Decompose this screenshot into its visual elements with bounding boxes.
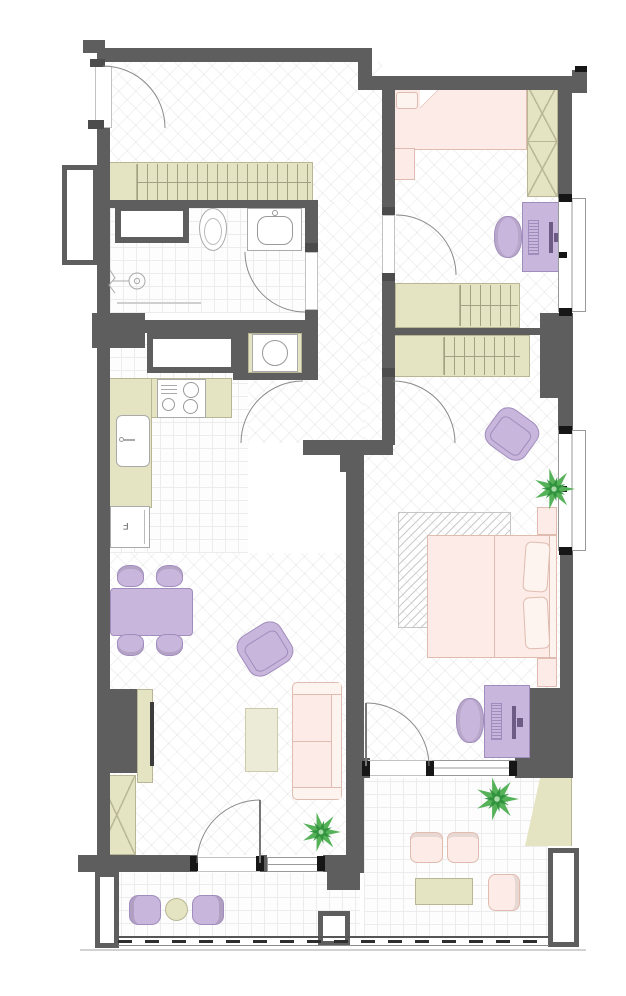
balcony-column-left — [95, 872, 119, 948]
wall-top-right — [358, 76, 572, 90]
toilet-bowl — [204, 218, 222, 245]
kitchen-faucet-bar — [124, 439, 135, 441]
dining-chair-1 — [117, 565, 144, 587]
dining-chair-4 — [156, 634, 183, 656]
wall-ledge-bottom-left — [78, 855, 197, 872]
sofa-cushion-line — [293, 741, 332, 742]
wall-living-bottom-east — [323, 855, 360, 872]
master-pillow-1 — [522, 541, 550, 593]
shower-screen — [117, 302, 201, 304]
master-door-tick — [382, 368, 395, 377]
master-monitor-stand — [517, 718, 523, 727]
balcony-column-right — [548, 848, 579, 947]
wall-right-2 — [560, 551, 573, 688]
wall-kids-master-divider — [393, 328, 573, 335]
entry-hinge-bottom — [88, 120, 104, 129]
wall-pillar-a — [540, 313, 573, 398]
kids-bed-pillow — [396, 92, 418, 109]
headboard — [549, 536, 556, 657]
kids-tall-wardrobe-upper — [527, 85, 558, 142]
hall-wardrobe-hangers — [136, 164, 311, 200]
washer-drum — [262, 340, 288, 366]
kids-door-opening — [382, 215, 395, 275]
kids-desk-chair — [494, 216, 522, 258]
master-window-tick-top — [559, 426, 572, 434]
sofa-back — [331, 683, 341, 799]
bath-door-opening — [305, 252, 318, 310]
living-window-south — [267, 857, 323, 872]
kids-keyboard — [528, 220, 539, 255]
master-pillow-2 — [523, 596, 551, 649]
kids-door-tick-a — [382, 207, 395, 215]
burner-grate — [161, 384, 177, 394]
kids-bed-foot — [392, 148, 415, 180]
nightstand-north — [537, 507, 557, 535]
master-keyboard — [491, 703, 502, 740]
master-wardrobe-hangers — [443, 337, 520, 375]
wall-living-master-divider — [346, 455, 364, 873]
tv — [150, 702, 154, 766]
kids-window-tick-bottom — [559, 308, 572, 316]
kids-window-tick-top — [559, 194, 572, 202]
balcony-chair-purple-1 — [129, 895, 161, 925]
floor-plan: F — [0, 0, 626, 996]
master-south-tick-c — [509, 761, 517, 776]
sofa-arm-top — [293, 683, 341, 695]
wall-washer-right — [302, 333, 318, 380]
blanket-line — [494, 536, 495, 657]
wall-washer-left — [233, 333, 248, 380]
wall-hall-kids-b — [382, 275, 395, 445]
sofa-arm-bottom — [293, 787, 341, 799]
fridge-label: F — [123, 521, 129, 531]
fridge-door-line — [144, 510, 145, 544]
wall-hall-stub — [303, 440, 393, 455]
wall-bath-bottom-block — [92, 313, 145, 348]
kitchen-island-cabinet — [147, 333, 237, 373]
living-south-tick-b — [256, 856, 264, 871]
balcony-armchair-pink-1 — [410, 832, 443, 863]
master-monitor — [512, 706, 516, 739]
external-shaft — [62, 165, 98, 265]
dining-chair-3 — [117, 634, 144, 656]
wall-washer-bottom — [248, 373, 302, 380]
wall-left — [97, 128, 110, 689]
coffee-table — [245, 708, 278, 772]
ground-line — [80, 949, 586, 951]
balcony-round-table — [165, 898, 188, 921]
kids-bed-fold — [420, 88, 440, 108]
kids-monitor — [549, 222, 553, 253]
refrigerator: F — [110, 506, 150, 548]
master-window-tick-bottom — [559, 547, 572, 555]
wall-master-bottom-east — [515, 758, 573, 778]
wall-right-kids — [558, 90, 572, 200]
wall-bath-bottom — [145, 320, 307, 333]
entry-door-opening — [95, 66, 112, 128]
nightstand-south — [537, 658, 557, 687]
bath-basin — [257, 216, 293, 245]
wall-top-left — [97, 48, 372, 62]
dining-chair-2 — [156, 565, 183, 587]
living-south-tick-a — [190, 856, 198, 871]
master-south-tick-b — [426, 761, 434, 776]
wall-hall-kids-a — [382, 90, 395, 215]
bath-door-tick — [305, 243, 318, 252]
balcony-armchair-pink-2 — [447, 832, 479, 863]
burner-2 — [162, 398, 175, 411]
floor-hallway-south — [248, 380, 382, 443]
living-balcony-door-opening — [197, 857, 260, 872]
kids-window-tick-mid — [559, 252, 567, 258]
wall-pillar-tv — [97, 689, 137, 773]
bath-faucet — [272, 210, 278, 216]
bathroom-duct-box — [115, 205, 189, 243]
balcony-table — [415, 878, 473, 905]
kids-wardrobe-hangers — [459, 285, 518, 326]
entry-hinge-top — [90, 59, 105, 67]
balcony-chair-pink-3 — [488, 874, 520, 911]
tick-top-right — [575, 66, 587, 72]
sofa — [292, 682, 342, 800]
master-window-south — [432, 760, 515, 776]
kids-tall-wardrobe-lower — [527, 141, 558, 197]
master-desk — [484, 685, 530, 758]
wall-bath-top — [102, 200, 318, 208]
burner-1 — [183, 382, 199, 398]
wall-left-lower — [97, 773, 110, 857]
burner-3 — [183, 399, 198, 414]
master-balcony-door-opening — [368, 760, 432, 776]
master-desk-chair — [456, 698, 484, 743]
balcony-railing — [118, 936, 549, 946]
wall-cap-top-right — [572, 70, 587, 93]
living-south-tick-c — [317, 856, 325, 871]
master-window-tick-mid — [559, 486, 567, 492]
dining-table — [110, 588, 193, 636]
kids-door-tick-b — [382, 273, 395, 281]
master-south-tick-a — [362, 761, 370, 776]
balcony-chair-purple-2 — [192, 895, 224, 925]
